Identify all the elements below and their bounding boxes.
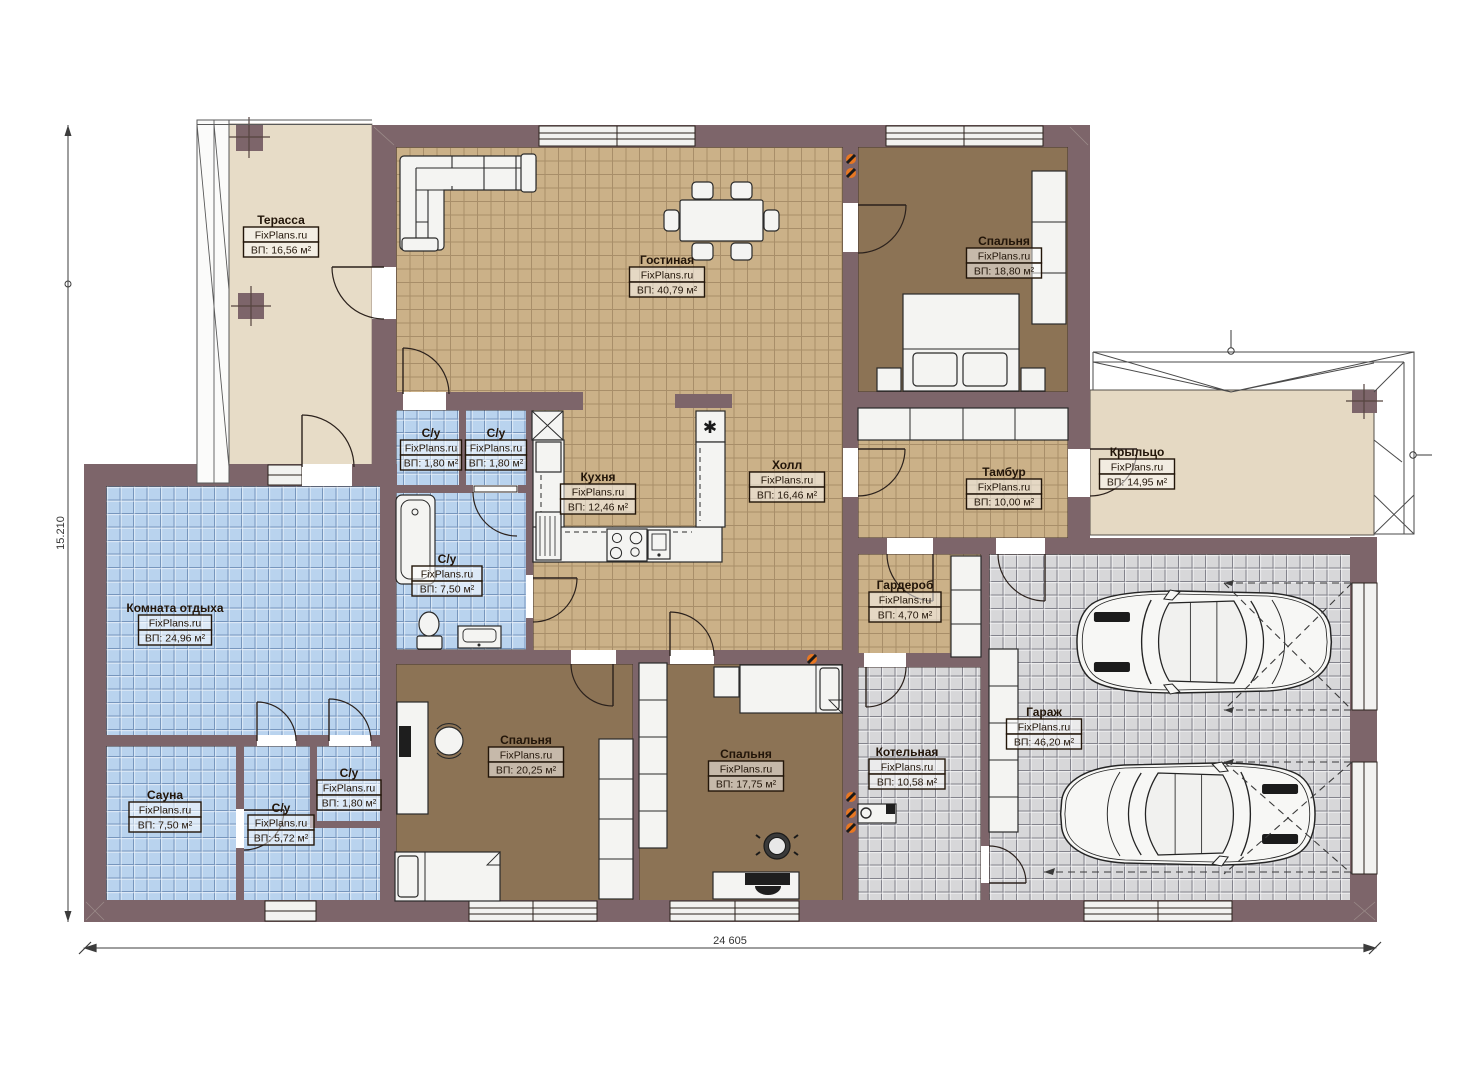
svg-text:FixPlans.ru: FixPlans.ru (761, 475, 814, 487)
svg-text:ВП: 24,96 м²: ВП: 24,96 м² (145, 633, 206, 645)
svg-text:ВП: 12,46 м²: ВП: 12,46 м² (568, 502, 629, 514)
svg-text:ВП: 4,70 м²: ВП: 4,70 м² (878, 610, 933, 622)
svg-text:FixPlans.ru: FixPlans.ru (323, 783, 376, 795)
svg-text:✱: ✱ (703, 418, 717, 437)
svg-text:Холл: Холл (772, 458, 802, 472)
svg-text:FixPlans.ru: FixPlans.ru (1018, 722, 1071, 734)
svg-text:FixPlans.ru: FixPlans.ru (500, 750, 553, 762)
svg-text:FixPlans.ru: FixPlans.ru (139, 805, 192, 817)
svg-text:ВП: 16,56 м²: ВП: 16,56 м² (251, 245, 312, 257)
svg-text:Гараж: Гараж (1026, 705, 1062, 719)
svg-text:FixPlans.ru: FixPlans.ru (978, 251, 1031, 263)
svg-text:ВП: 18,80 м²: ВП: 18,80 м² (974, 266, 1035, 278)
svg-text:Котельная: Котельная (876, 745, 939, 759)
svg-text:ВП: 16,46 м²: ВП: 16,46 м² (757, 490, 818, 502)
svg-text:Терасса: Терасса (257, 213, 305, 227)
svg-text:ВП: 46,20 м²: ВП: 46,20 м² (1014, 737, 1075, 749)
svg-text:ВП: 10,00 м²: ВП: 10,00 м² (974, 497, 1035, 509)
svg-text:FixPlans.ru: FixPlans.ru (255, 818, 308, 830)
svg-text:ВП: 14,95 м²: ВП: 14,95 м² (1107, 477, 1168, 489)
svg-text:FixPlans.ru: FixPlans.ru (1111, 462, 1164, 474)
svg-text:С/у: С/у (340, 766, 359, 780)
svg-text:С/у: С/у (272, 801, 291, 815)
svg-text:Гардероб: Гардероб (877, 578, 934, 592)
svg-text:FixPlans.ru: FixPlans.ru (641, 270, 694, 282)
svg-text:С/у: С/у (422, 426, 441, 440)
svg-text:Гостиная: Гостиная (640, 253, 694, 267)
svg-text:FixPlans.ru: FixPlans.ru (405, 443, 458, 455)
svg-text:ВП: 5,72 м²: ВП: 5,72 м² (254, 833, 309, 845)
svg-text:ВП: 1,80 м²: ВП: 1,80 м² (469, 458, 524, 470)
svg-text:FixPlans.ru: FixPlans.ru (255, 230, 308, 242)
svg-text:Спальня: Спальня (720, 747, 772, 761)
svg-text:Спальня: Спальня (978, 234, 1030, 248)
svg-text:FixPlans.ru: FixPlans.ru (879, 595, 932, 607)
svg-text:С/у: С/у (487, 426, 506, 440)
svg-text:С/у: С/у (438, 552, 457, 566)
svg-text:FixPlans.ru: FixPlans.ru (572, 487, 625, 499)
svg-text:FixPlans.ru: FixPlans.ru (421, 569, 474, 581)
svg-text:Тамбур: Тамбур (982, 465, 1026, 479)
svg-text:Сауна: Сауна (147, 788, 183, 802)
svg-text:FixPlans.ru: FixPlans.ru (149, 618, 202, 630)
svg-text:Спальня: Спальня (500, 733, 552, 747)
svg-text:15.210: 15.210 (55, 516, 67, 550)
svg-text:FixPlans.ru: FixPlans.ru (720, 764, 773, 776)
svg-text:ВП: 7,50 м²: ВП: 7,50 м² (420, 584, 475, 596)
svg-text:24 605: 24 605 (713, 935, 747, 947)
svg-text:ВП: 7,50 м²: ВП: 7,50 м² (138, 820, 193, 832)
svg-text:Кухня: Кухня (580, 470, 615, 484)
svg-text:ВП: 10,58 м²: ВП: 10,58 м² (877, 777, 938, 789)
svg-text:Комната отдыха: Комната отдыха (126, 601, 223, 615)
svg-text:FixPlans.ru: FixPlans.ru (881, 762, 934, 774)
svg-text:ВП: 17,75 м²: ВП: 17,75 м² (716, 779, 777, 791)
svg-text:ВП: 40,79 м²: ВП: 40,79 м² (637, 285, 698, 297)
svg-text:Крыльцо: Крыльцо (1110, 445, 1165, 459)
svg-text:FixPlans.ru: FixPlans.ru (978, 482, 1031, 494)
svg-text:FixPlans.ru: FixPlans.ru (470, 443, 523, 455)
svg-text:ВП: 20,25 м²: ВП: 20,25 м² (496, 765, 557, 777)
svg-text:ВП: 1,80 м²: ВП: 1,80 м² (322, 798, 377, 810)
svg-text:ВП: 1,80 м²: ВП: 1,80 м² (404, 458, 459, 470)
